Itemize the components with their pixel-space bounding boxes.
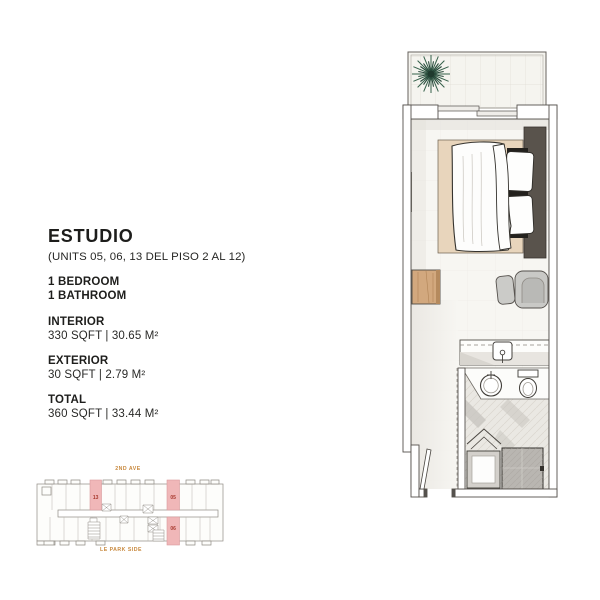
total-label: TOTAL [48, 394, 358, 406]
interior-label: INTERIOR [48, 316, 358, 328]
faucet [500, 350, 505, 355]
building-outline [37, 480, 223, 545]
shower-tray-inner [472, 456, 495, 483]
total-section: TOTAL 360 SQFT | 33.44 M² [48, 394, 358, 420]
feature-bedroom: 1 BEDROOM [48, 275, 358, 289]
wall-right [549, 105, 557, 497]
seating-area [496, 271, 548, 308]
interior-value: 330 SQFT | 30.65 M² [48, 330, 358, 342]
street-label-bottom: LE PARK SIDE [100, 547, 142, 553]
key-plan: 2ND AVE 13 05 06 LE PARK SIDE [30, 455, 235, 575]
armchair-seat [522, 278, 544, 303]
kitchenette [460, 340, 549, 365]
street-label-top: 2ND AVE [115, 466, 140, 472]
side-table [412, 270, 440, 304]
toilet-tank [518, 370, 538, 377]
door-jamb [452, 489, 455, 497]
wall-bathroom-partition [458, 368, 465, 489]
total-value: 360 SQFT | 33.44 M² [48, 408, 358, 420]
plant-icon [412, 55, 450, 93]
interior-section: INTERIOR 330 SQFT | 30.65 M² [48, 316, 358, 342]
corridor [58, 510, 218, 517]
door-jamb [424, 489, 427, 497]
exterior-section: EXTERIOR 30 SQFT | 2.79 M² [48, 355, 358, 381]
wall-left [403, 105, 411, 452]
balcony [408, 52, 546, 108]
feature-bathroom: 1 BATHROOM [48, 289, 358, 303]
balcony-bumps-top [45, 480, 219, 484]
bed-area [438, 127, 546, 258]
feature-list: 1 BEDROOM 1 BATHROOM [48, 275, 358, 303]
unit-06-label: 06 [170, 526, 176, 532]
ottoman [496, 275, 516, 305]
sliding-door-panel [438, 106, 479, 111]
unit-13-label: 13 [93, 495, 99, 501]
page-title: ESTUDIO [48, 227, 358, 246]
exterior-value: 30 SQFT | 2.79 M² [48, 369, 358, 381]
floor-plan [375, 45, 585, 505]
plant-center [428, 71, 435, 78]
unit-05-label: 05 [170, 495, 176, 501]
toilet-bowl [520, 379, 537, 398]
wall-bottom [455, 489, 557, 497]
units-subtitle: (UNITS 05, 06, 13 DEL PISO 2 AL 12) [48, 251, 358, 263]
corner-unit [42, 487, 51, 495]
shower-door-handle [540, 466, 544, 471]
side-table-edge [436, 270, 440, 304]
bathroom [457, 368, 549, 489]
shower-hatch [502, 448, 543, 489]
balcony-bumps-bottom [37, 541, 211, 545]
wall-left-lower [411, 445, 419, 497]
sliding-door-panel [477, 111, 517, 116]
pillow [505, 151, 534, 191]
side-table-top [412, 270, 440, 304]
exterior-label: EXTERIOR [48, 355, 358, 367]
info-panel: ESTUDIO (UNITS 05, 06, 13 DEL PISO 2 AL … [48, 227, 358, 420]
